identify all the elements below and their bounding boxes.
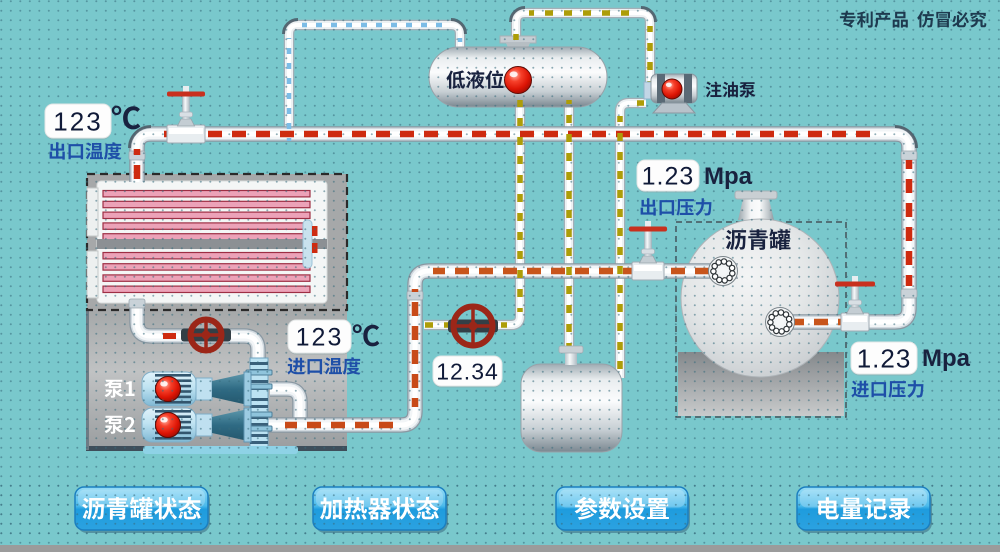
svg-text:123: 123 bbox=[296, 324, 344, 352]
svg-text:Mpa: Mpa bbox=[922, 345, 971, 372]
svg-text:12.34: 12.34 bbox=[436, 358, 499, 384]
svg-text:1.23: 1.23 bbox=[642, 163, 695, 191]
svg-text:123: 123 bbox=[53, 106, 102, 136]
svg-text:1.23: 1.23 bbox=[857, 343, 912, 373]
svg-text:Mpa: Mpa bbox=[704, 163, 753, 190]
